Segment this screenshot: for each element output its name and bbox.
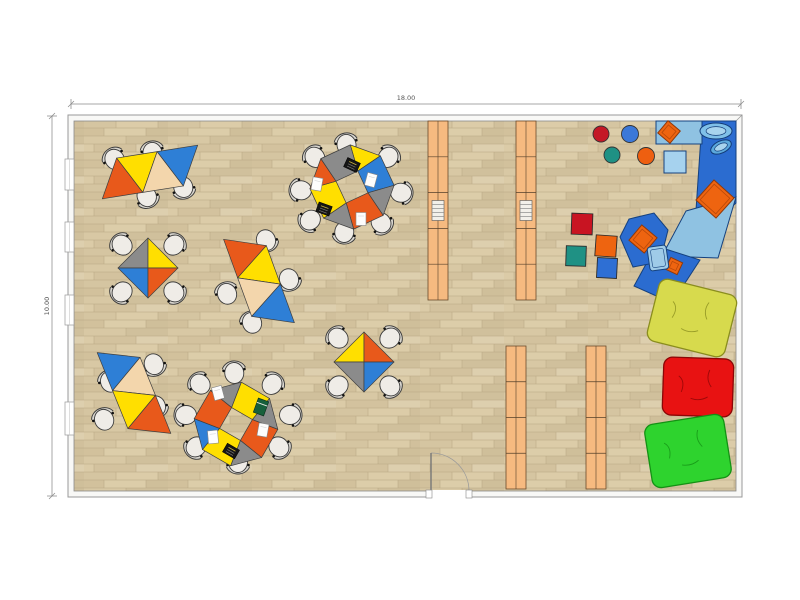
paper-sheet [257,423,269,438]
room-height-label: 10.00 [43,297,51,316]
stool[interactable] [593,126,609,142]
floor-cushion[interactable] [571,213,593,235]
paper-sheet [356,213,366,226]
window [65,222,74,252]
paper-sheet [311,177,323,192]
dimension-top: 18.00 [68,94,744,109]
table-cluster-cross[interactable] [322,322,405,401]
floor-plan-drawing [65,115,742,498]
stool[interactable] [622,126,639,143]
floor-plan-page: 18.00 10.00 [0,0,800,600]
table-cluster-cross[interactable] [106,229,189,307]
shelf-books [520,201,532,221]
shelf-unit[interactable] [506,346,526,489]
bean-bag[interactable] [662,357,734,417]
stool[interactable] [638,148,655,165]
floor-cushion[interactable] [596,257,617,278]
window [65,295,74,325]
floor-plan-canvas: 18.00 10.00 [0,0,800,600]
bean-bag[interactable] [643,413,732,489]
room-width-label: 18.00 [397,94,416,102]
bowl-seat[interactable] [700,123,732,139]
dimension-left: 10.00 [43,113,57,499]
shelf-unit[interactable] [428,121,448,300]
paper-sheet [207,430,218,444]
light-pillow[interactable] [647,245,669,271]
shelf-unit[interactable] [586,346,606,489]
shelf-books [432,201,444,221]
floor-cushion[interactable] [595,235,617,257]
shelf-unit[interactable] [516,121,536,300]
window [65,402,74,435]
window [65,159,74,190]
floor-cushion[interactable] [566,246,587,267]
stool[interactable] [604,147,620,163]
